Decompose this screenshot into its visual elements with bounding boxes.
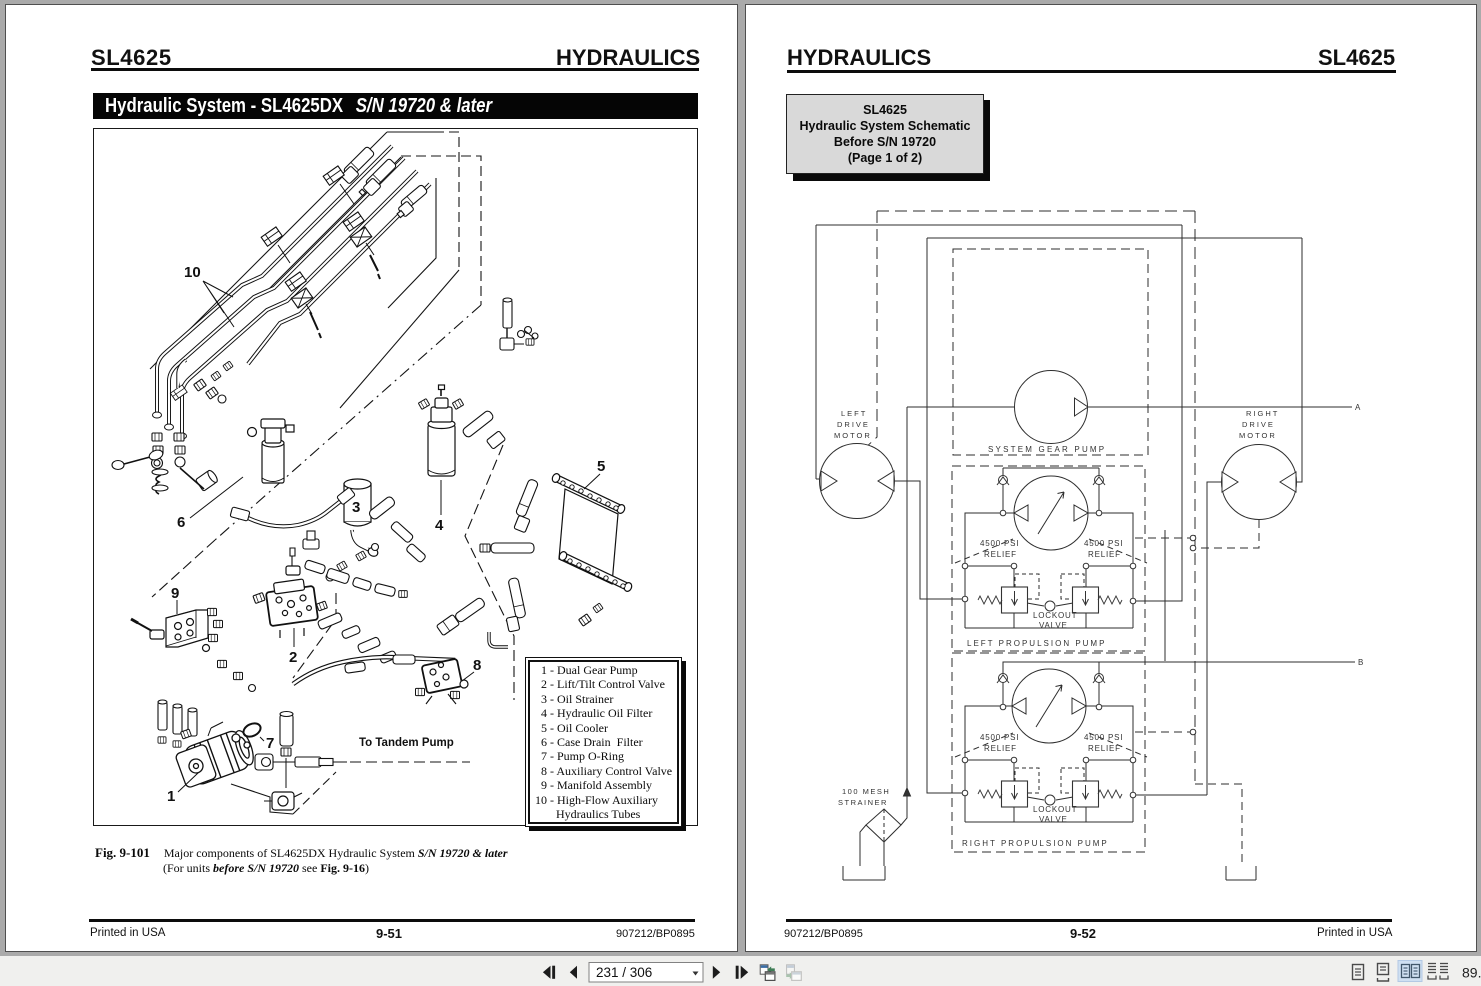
svg-text:LEFT PROPULSION PUMP: LEFT PROPULSION PUMP — [967, 639, 1106, 648]
svg-text:4500 PSI: 4500 PSI — [980, 733, 1019, 742]
svg-text:SYSTEM GEAR PUMP: SYSTEM GEAR PUMP — [988, 445, 1106, 454]
svg-text:DRIVE: DRIVE — [1242, 420, 1275, 429]
svg-text:LOCKOUT: LOCKOUT — [1033, 611, 1077, 620]
svg-text:RELIEF: RELIEF — [984, 744, 1017, 753]
svg-text:4500 PSI: 4500 PSI — [1084, 539, 1123, 548]
svg-text:DRIVE: DRIVE — [837, 420, 870, 429]
svg-text:4500 PSI: 4500 PSI — [980, 539, 1019, 548]
svg-text:100 MESH: 100 MESH — [842, 787, 890, 796]
svg-text:MOTOR: MOTOR — [1239, 431, 1277, 440]
svg-text:LEFT: LEFT — [841, 409, 867, 418]
svg-text:VALVE: VALVE — [1039, 621, 1068, 630]
svg-text:VALVE: VALVE — [1039, 815, 1068, 824]
svg-text:RIGHT: RIGHT — [1246, 409, 1279, 418]
svg-text:4500 PSI: 4500 PSI — [1084, 733, 1123, 742]
svg-text:LOCKOUT: LOCKOUT — [1033, 805, 1077, 814]
svg-text:RELIEF: RELIEF — [1088, 744, 1121, 753]
svg-text:B: B — [1358, 658, 1363, 667]
svg-text:RIGHT PROPULSION PUMP: RIGHT PROPULSION PUMP — [962, 839, 1109, 848]
svg-text:RELIEF: RELIEF — [1088, 550, 1121, 559]
svg-text:MOTOR: MOTOR — [834, 431, 872, 440]
svg-text:A: A — [1355, 403, 1361, 412]
svg-text:RELIEF: RELIEF — [984, 550, 1017, 559]
svg-text:STRAINER: STRAINER — [838, 798, 888, 807]
